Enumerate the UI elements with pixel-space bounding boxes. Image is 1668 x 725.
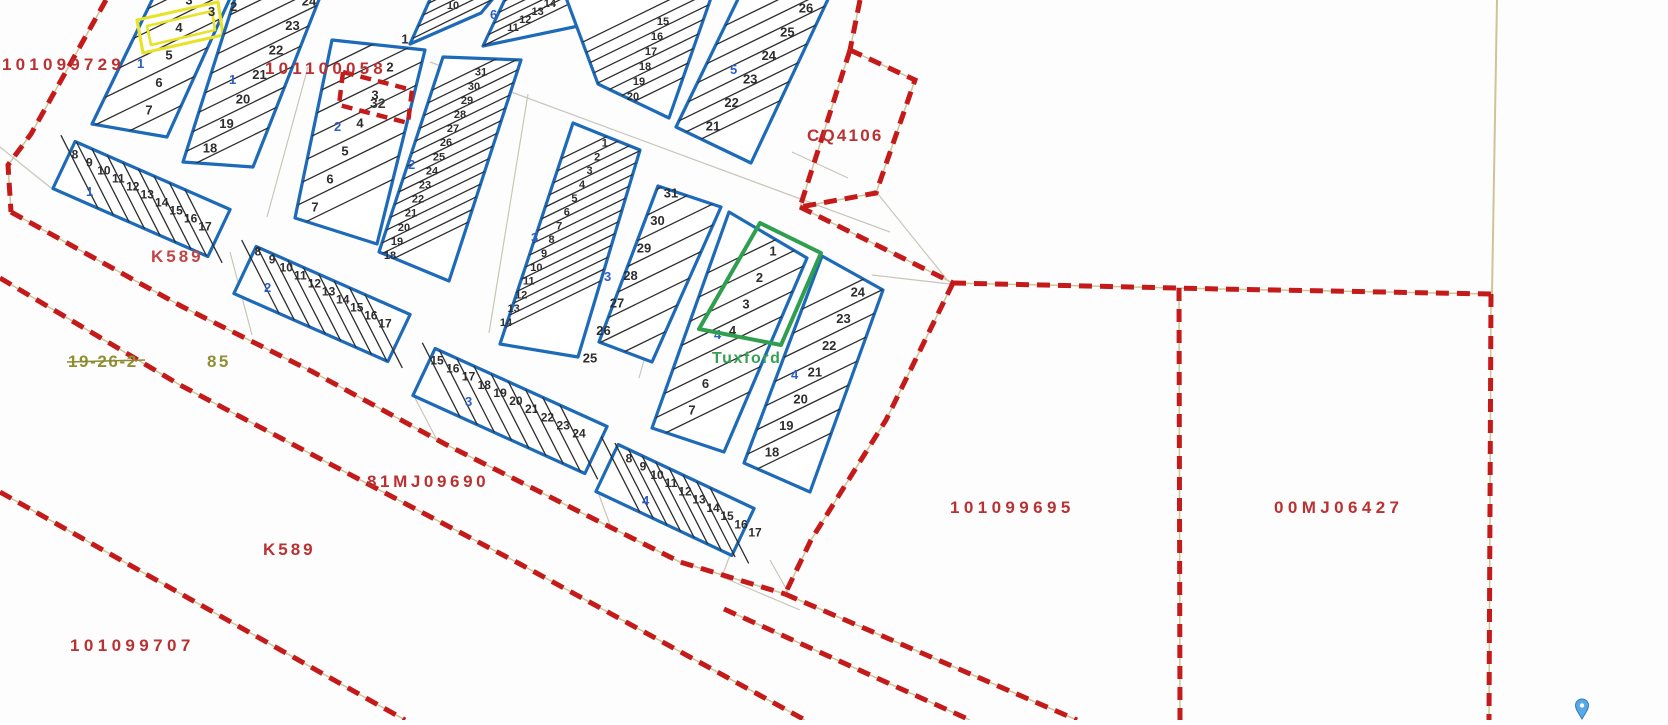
- svg-text:16: 16: [364, 309, 378, 323]
- svg-text:22: 22: [412, 194, 424, 206]
- svg-text:22: 22: [822, 338, 836, 353]
- svg-text:31: 31: [664, 186, 678, 201]
- svg-text:28: 28: [623, 268, 637, 283]
- svg-text:19: 19: [633, 76, 645, 88]
- svg-text:12: 12: [515, 289, 527, 301]
- svg-text:6: 6: [155, 75, 162, 90]
- svg-text:10: 10: [97, 164, 111, 178]
- svg-text:23: 23: [419, 180, 431, 192]
- svg-text:23: 23: [557, 418, 571, 432]
- svg-text:21: 21: [706, 119, 720, 134]
- svg-text:25: 25: [780, 24, 794, 39]
- svg-text:1: 1: [86, 184, 93, 199]
- svg-text:19: 19: [779, 418, 793, 433]
- svg-text:00MJ06427: 00MJ06427: [1274, 498, 1403, 517]
- svg-text:2: 2: [408, 157, 415, 172]
- svg-text:5: 5: [730, 62, 737, 77]
- svg-text:5: 5: [165, 48, 172, 63]
- svg-text:8: 8: [549, 234, 555, 246]
- svg-text:20: 20: [627, 91, 639, 103]
- svg-text:24: 24: [302, 0, 317, 9]
- svg-text:15: 15: [657, 16, 669, 28]
- svg-text:101099729: 101099729: [2, 55, 125, 74]
- svg-text:1: 1: [769, 244, 776, 259]
- svg-text:20: 20: [793, 391, 807, 406]
- svg-text:15: 15: [350, 301, 364, 315]
- svg-text:1: 1: [137, 56, 144, 71]
- svg-text:K589: K589: [263, 540, 316, 559]
- svg-text:4: 4: [791, 367, 799, 382]
- svg-text:6: 6: [490, 7, 497, 22]
- svg-text:7: 7: [688, 403, 695, 418]
- svg-text:3: 3: [208, 4, 215, 19]
- svg-text:23: 23: [285, 18, 299, 33]
- svg-text:24: 24: [426, 165, 439, 177]
- svg-text:2: 2: [264, 280, 271, 295]
- svg-text:12: 12: [519, 14, 531, 26]
- svg-text:8: 8: [626, 452, 633, 466]
- svg-text:14: 14: [155, 196, 169, 210]
- svg-text:21: 21: [525, 402, 539, 416]
- svg-text:18: 18: [478, 378, 492, 392]
- svg-text:18: 18: [384, 250, 396, 262]
- svg-text:26: 26: [799, 1, 813, 16]
- svg-text:11: 11: [294, 269, 307, 283]
- svg-text:10: 10: [447, 0, 459, 12]
- svg-text:20: 20: [398, 222, 410, 234]
- svg-text:85: 85: [207, 352, 231, 371]
- svg-text:11: 11: [523, 276, 535, 288]
- svg-text:29: 29: [461, 95, 473, 107]
- svg-text:4: 4: [579, 179, 586, 191]
- svg-text:13: 13: [692, 493, 706, 507]
- svg-text:20: 20: [236, 92, 250, 107]
- svg-text:24: 24: [572, 427, 586, 441]
- svg-text:24: 24: [762, 48, 777, 63]
- svg-text:11: 11: [507, 22, 519, 34]
- svg-text:10: 10: [530, 262, 542, 274]
- svg-text:11: 11: [112, 172, 125, 186]
- svg-text:17: 17: [378, 317, 392, 331]
- svg-text:22: 22: [541, 410, 555, 424]
- svg-text:31: 31: [475, 67, 487, 79]
- svg-text:7: 7: [311, 200, 318, 215]
- svg-text:28: 28: [454, 109, 466, 121]
- svg-text:25: 25: [583, 351, 597, 366]
- svg-text:101099707: 101099707: [70, 636, 195, 655]
- svg-text:26: 26: [440, 137, 452, 149]
- svg-text:5: 5: [571, 193, 577, 205]
- svg-text:2: 2: [594, 151, 600, 163]
- svg-text:25: 25: [433, 151, 445, 163]
- svg-text:13: 13: [531, 6, 543, 18]
- svg-text:16: 16: [651, 31, 663, 43]
- svg-text:K589: K589: [151, 247, 204, 266]
- svg-text:2: 2: [230, 0, 237, 14]
- svg-text:4: 4: [175, 20, 183, 35]
- svg-text:1: 1: [602, 138, 608, 150]
- svg-text:32: 32: [370, 95, 386, 111]
- svg-text:14: 14: [544, 0, 557, 10]
- svg-text:9: 9: [86, 156, 93, 170]
- svg-text:19: 19: [219, 116, 233, 131]
- svg-text:18: 18: [203, 141, 217, 156]
- svg-text:101100058: 101100058: [265, 59, 387, 78]
- svg-text:19: 19: [493, 386, 507, 400]
- svg-text:5: 5: [341, 144, 348, 159]
- svg-text:Tuxford: Tuxford: [712, 350, 782, 367]
- svg-text:17: 17: [462, 370, 476, 384]
- svg-text:CQ4106: CQ4106: [807, 126, 884, 145]
- svg-text:15: 15: [430, 354, 444, 368]
- svg-text:13: 13: [507, 303, 519, 315]
- svg-text:18: 18: [765, 445, 779, 460]
- svg-text:17: 17: [748, 526, 762, 540]
- svg-text:12: 12: [126, 180, 140, 194]
- svg-text:14: 14: [336, 293, 350, 307]
- svg-text:12: 12: [308, 277, 322, 291]
- svg-text:16: 16: [184, 212, 198, 226]
- svg-text:20: 20: [509, 394, 523, 408]
- svg-text:14: 14: [706, 501, 720, 515]
- svg-text:16: 16: [446, 362, 460, 376]
- svg-text:17: 17: [645, 46, 657, 58]
- svg-text:2: 2: [386, 60, 393, 75]
- svg-text:15: 15: [169, 204, 183, 218]
- svg-text:2: 2: [756, 270, 763, 285]
- svg-text:9: 9: [269, 253, 276, 267]
- svg-text:101099695: 101099695: [950, 498, 1075, 517]
- svg-text:1: 1: [401, 32, 408, 47]
- svg-text:26: 26: [596, 323, 610, 338]
- svg-text:15: 15: [720, 509, 734, 523]
- svg-text:24: 24: [851, 285, 866, 300]
- svg-text:22: 22: [724, 95, 738, 110]
- svg-text:9: 9: [640, 460, 647, 474]
- svg-text:3: 3: [587, 165, 593, 177]
- svg-text:4: 4: [356, 116, 364, 131]
- svg-text:11: 11: [665, 476, 678, 490]
- svg-text:12: 12: [678, 484, 692, 498]
- svg-text:21: 21: [808, 365, 822, 380]
- svg-text:14: 14: [500, 317, 513, 329]
- svg-text:3: 3: [465, 394, 472, 409]
- svg-text:6: 6: [326, 172, 333, 187]
- svg-text:22: 22: [269, 43, 283, 58]
- svg-text:16: 16: [734, 517, 748, 531]
- svg-text:30: 30: [650, 213, 664, 228]
- svg-text:8: 8: [255, 245, 262, 259]
- svg-text:2: 2: [334, 119, 341, 134]
- svg-text:81MJ09690: 81MJ09690: [367, 472, 489, 491]
- svg-text:7: 7: [145, 103, 152, 118]
- svg-text:13: 13: [141, 188, 155, 202]
- svg-text:27: 27: [610, 296, 624, 311]
- svg-text:6: 6: [702, 376, 709, 391]
- svg-text:10: 10: [280, 261, 294, 275]
- svg-text:3: 3: [604, 269, 611, 284]
- svg-text:29: 29: [637, 241, 651, 256]
- svg-text:1: 1: [229, 72, 236, 87]
- svg-text:23: 23: [743, 72, 757, 87]
- svg-text:10: 10: [650, 468, 664, 482]
- svg-text:17: 17: [198, 220, 212, 234]
- svg-text:9: 9: [541, 248, 547, 260]
- svg-text:7: 7: [556, 220, 562, 232]
- svg-text:19: 19: [391, 236, 403, 248]
- svg-text:27: 27: [447, 123, 459, 135]
- svg-text:6: 6: [564, 207, 570, 219]
- svg-text:13: 13: [322, 285, 336, 299]
- svg-text:3: 3: [531, 230, 538, 245]
- svg-text:21: 21: [405, 208, 417, 220]
- svg-text:30: 30: [468, 81, 480, 93]
- svg-text:18: 18: [639, 61, 651, 73]
- svg-text:23: 23: [836, 311, 850, 326]
- svg-text:4: 4: [642, 493, 650, 508]
- svg-text:3: 3: [742, 297, 749, 312]
- svg-text:8: 8: [72, 148, 79, 162]
